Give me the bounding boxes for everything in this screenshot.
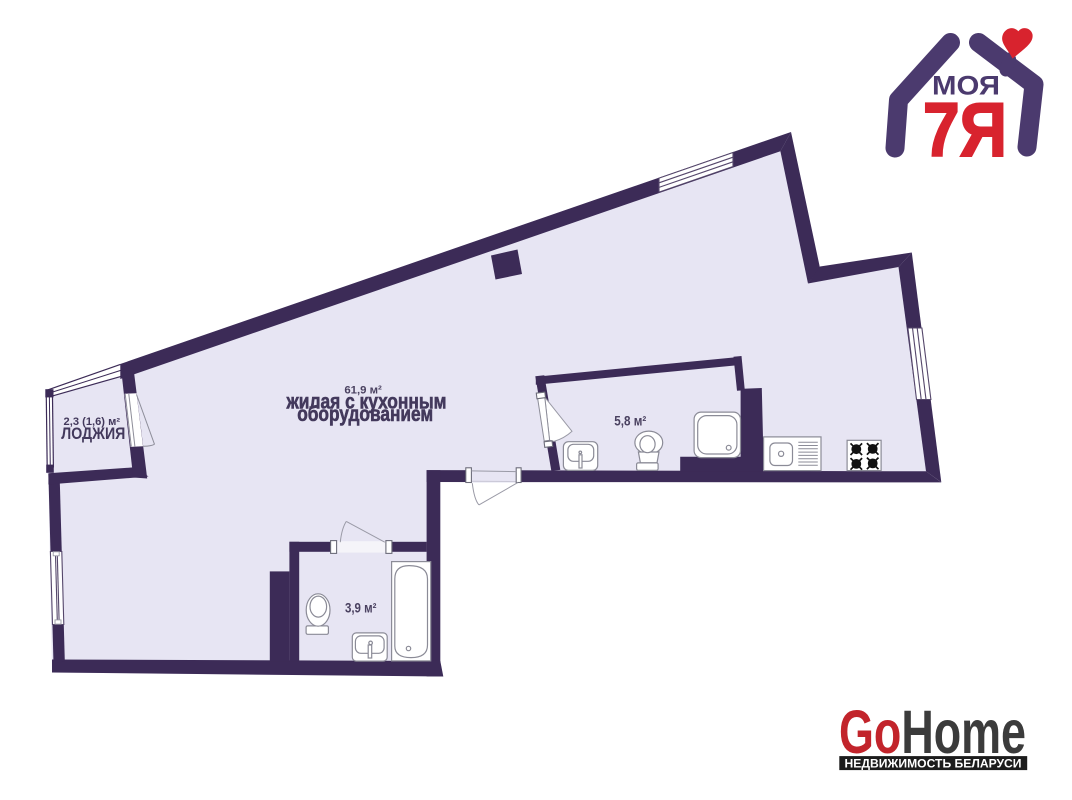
svg-text:НЕДВИЖИМОСТЬ БЕЛАРУСИ: НЕДВИЖИМОСТЬ БЕЛАРУСИ [845, 756, 1022, 770]
svg-text:5,8 м²: 5,8 м² [614, 413, 646, 428]
svg-text:оборудованием: оборудованием [297, 403, 433, 426]
svg-text:ЛОДЖИЯ: ЛОДЖИЯ [61, 425, 125, 443]
svg-text:7Я: 7Я [923, 88, 1007, 173]
svg-text:3,9 м²: 3,9 м² [345, 600, 377, 615]
